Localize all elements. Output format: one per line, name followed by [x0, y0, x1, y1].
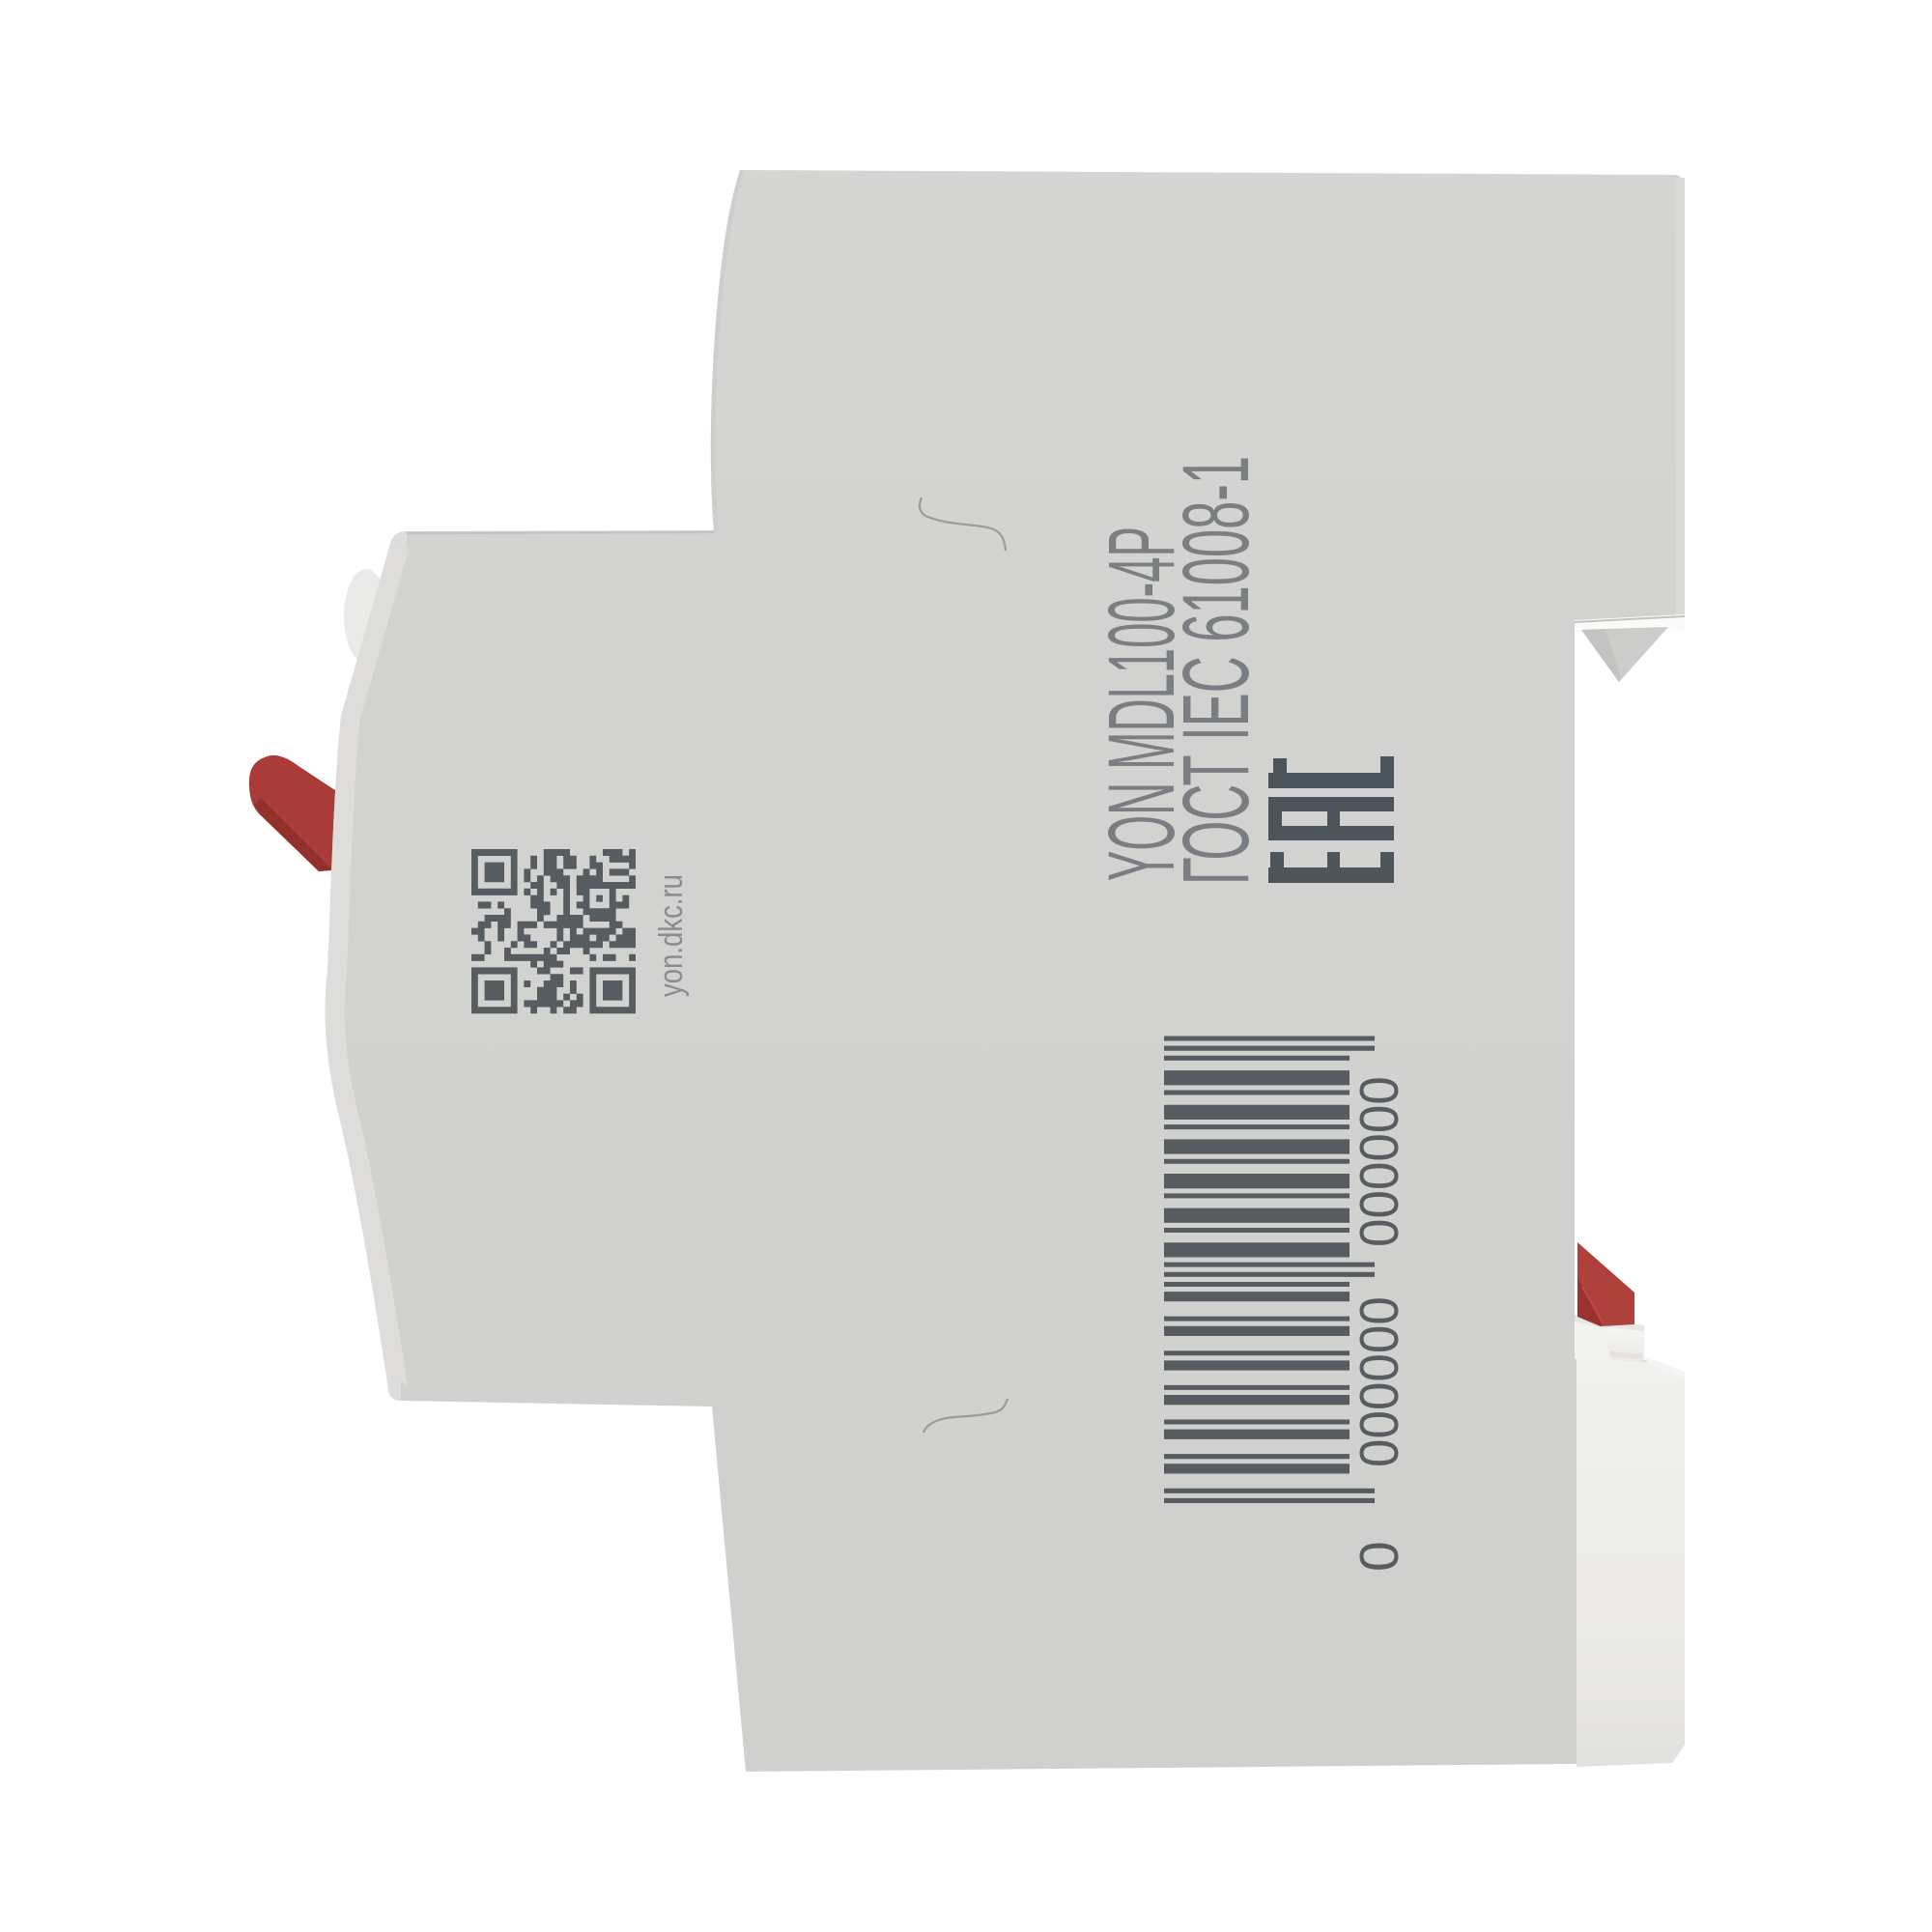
svg-text:000000: 000000	[1348, 1296, 1409, 1467]
svg-text:yon.dkc.ru: yon.dkc.ru	[652, 874, 689, 997]
svg-text:000000: 000000	[1348, 1076, 1409, 1247]
svg-text:0: 0	[1349, 1541, 1410, 1572]
svg-text:ГОСТ IEC 61008-1: ГОСТ IEC 61008-1	[1163, 456, 1268, 885]
